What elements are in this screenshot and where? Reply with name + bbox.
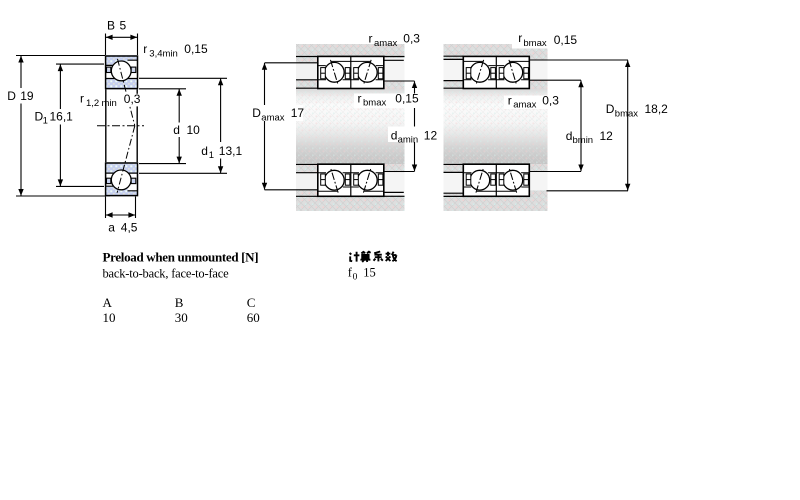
svg-text:A: A [103,295,113,310]
svg-text:d: d [201,144,208,158]
svg-text:min: min [102,98,117,109]
svg-text:18,2: 18,2 [645,102,669,116]
svg-text:30: 30 [175,310,188,325]
svg-text:amax: amax [374,38,397,49]
svg-text:r: r [508,93,512,107]
svg-text:D: D [606,102,615,116]
svg-text:0,15: 0,15 [395,91,419,105]
svg-text:10: 10 [187,123,201,137]
svg-text:60: 60 [247,310,260,325]
svg-text:B: B [107,19,115,33]
svg-text:a: a [108,221,115,235]
svg-text:1,2: 1,2 [86,98,99,109]
svg-text:0,3: 0,3 [403,32,420,46]
svg-text:C: C [247,295,256,310]
svg-text:B: B [175,295,184,310]
svg-text:amax: amax [261,112,284,123]
svg-text:amin: amin [398,134,419,145]
svg-text:bmax: bmax [363,98,386,109]
svg-text:0,3: 0,3 [124,92,141,106]
svg-text:r: r [143,42,147,56]
svg-text:10: 10 [103,310,116,325]
svg-text:3,4min: 3,4min [149,49,178,60]
svg-text:0,15: 0,15 [554,33,578,47]
svg-text:bmin: bmin [573,135,594,146]
svg-text:19: 19 [20,89,34,103]
svg-text:d: d [566,129,573,143]
svg-text:back-to-back, face-to-face: back-to-back, face-to-face [103,266,230,280]
svg-text:13,1: 13,1 [219,144,243,158]
svg-text:0,15: 0,15 [184,42,208,56]
svg-text:r: r [80,91,84,105]
svg-text:1: 1 [43,115,48,126]
svg-text:r: r [369,32,373,46]
svg-text:r: r [518,31,522,45]
svg-text:d: d [391,128,398,142]
svg-text:0: 0 [353,273,358,283]
svg-text:1: 1 [209,150,214,161]
svg-text:amax: amax [513,100,536,111]
svg-text:17: 17 [291,106,305,120]
svg-text:0,3: 0,3 [542,93,559,107]
svg-text:Preload when unmounted [N]: Preload when unmounted [N] [103,249,259,264]
svg-text:r: r [358,91,362,105]
svg-text:bmax: bmax [615,108,638,119]
svg-text:12: 12 [424,128,438,142]
svg-text:d: d [173,123,180,137]
svg-text:bmax: bmax [523,38,546,49]
svg-text:16,1: 16,1 [50,109,74,123]
svg-text:15: 15 [363,266,376,280]
svg-text:D: D [252,106,261,120]
svg-text:5: 5 [120,19,127,33]
svg-text:D: D [7,89,16,103]
svg-text:4,5: 4,5 [121,221,138,235]
svg-text:12: 12 [600,129,614,143]
